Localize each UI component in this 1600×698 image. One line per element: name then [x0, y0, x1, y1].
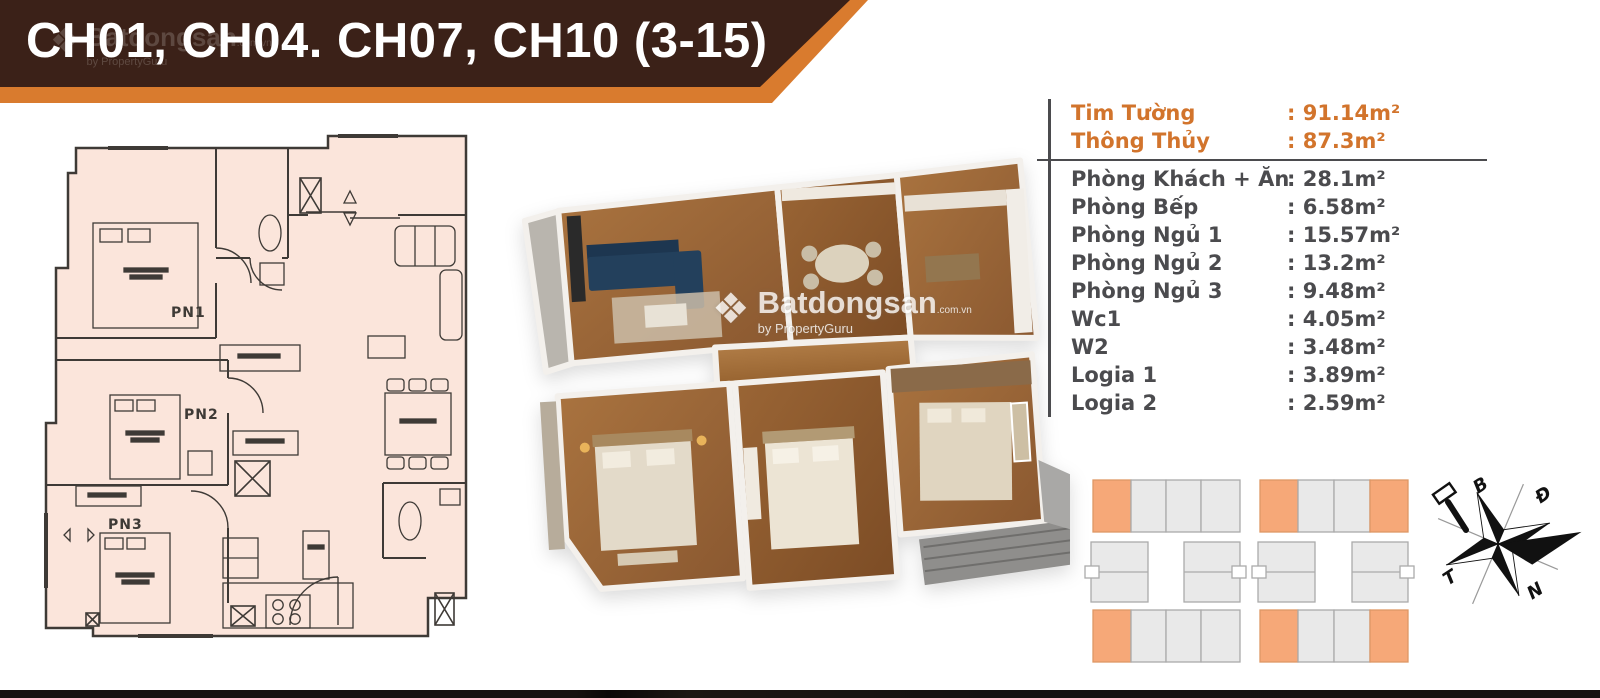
watermark-brand: Batdongsan — [758, 285, 937, 320]
floorplan-outline — [46, 136, 466, 636]
unit-notch — [1085, 566, 1099, 578]
unit-highlighted — [1260, 610, 1298, 662]
area-row-thong-thuy: Thông Thủy : 87.3m² — [1051, 127, 1487, 155]
watermark-byline: by PropertyGuru — [758, 321, 853, 336]
area-label: Tim Tường — [1051, 101, 1287, 125]
area-label: Phòng Ngủ 2 — [1051, 251, 1287, 275]
coffee-table-3d — [644, 303, 687, 328]
unit — [1166, 610, 1201, 662]
compass-label-south: N — [1523, 578, 1547, 604]
area-row: Wc1 : 4.05m² — [1051, 305, 1487, 333]
area-value: : 13.2m² — [1287, 251, 1386, 275]
unit — [1298, 610, 1334, 662]
poster: ❖ Batdongsan.com.vn by PropertyGuru CH01… — [0, 0, 1600, 698]
unit-notch — [1400, 566, 1414, 578]
area-value: : 87.3m² — [1287, 129, 1386, 153]
unit-highlighted — [1260, 480, 1298, 532]
unit-title: CH01, CH04. CH07, CH10 (3-15) — [26, 13, 768, 69]
unit — [1201, 610, 1240, 662]
area-value: : 9.48m² — [1287, 279, 1386, 303]
area-row-tim-tuong: Tim Tường : 91.14m² — [1051, 99, 1487, 127]
bottom-strip — [0, 690, 1600, 698]
area-row: Phòng Ngủ 2 : 13.2m² — [1051, 249, 1487, 277]
room-label-pn1: PN1 — [171, 305, 206, 321]
area-row: Phòng Ngủ 1 : 15.57m² — [1051, 221, 1487, 249]
unit — [1131, 610, 1166, 662]
unit — [1298, 480, 1334, 532]
area-value: : 6.58m² — [1287, 195, 1386, 219]
site-plan — [1070, 468, 1420, 668]
area-label: Thông Thủy — [1051, 129, 1287, 153]
compass-label-west: T — [1439, 565, 1462, 590]
area-value: : 28.1m² — [1287, 167, 1386, 191]
unit-highlighted — [1370, 610, 1408, 662]
area-label: Logia 2 — [1051, 391, 1287, 415]
area-label: Phòng Ngủ 3 — [1051, 279, 1287, 303]
room-label-pn2: PN2 — [184, 407, 219, 423]
compass-label-east: Đ — [1530, 482, 1555, 508]
unit — [1334, 610, 1370, 662]
unit-notch — [1232, 566, 1246, 578]
unit — [1131, 480, 1166, 532]
area-row: Logia 1 : 3.89m² — [1051, 361, 1487, 389]
area-label: Logia 1 — [1051, 363, 1287, 387]
area-value: : 3.48m² — [1287, 335, 1386, 359]
area-label: Phòng Khách + Ăn — [1051, 167, 1287, 191]
unit — [1334, 480, 1370, 532]
area-value: : 15.57m² — [1287, 223, 1400, 247]
render-watermark: ❖ Batdongsan.com.vn by PropertyGuru — [712, 286, 972, 338]
watermark-logo-icon: ❖ — [712, 286, 750, 332]
table-separator — [1037, 159, 1487, 161]
unit-highlighted — [1093, 480, 1131, 532]
area-label: Phòng Bếp — [1051, 195, 1287, 219]
unit-notch — [1252, 566, 1266, 578]
unit — [1166, 480, 1201, 532]
floorplan-2d: PN1 PN2 PN3 — [38, 133, 482, 647]
area-row: Phòng Khách + Ăn : 28.1m² — [1051, 165, 1487, 193]
area-row: Phòng Ngủ 3 : 9.48m² — [1051, 277, 1487, 305]
area-row: W2 : 3.48m² — [1051, 333, 1487, 361]
unit-highlighted — [1370, 480, 1408, 532]
area-value: : 91.14m² — [1287, 101, 1400, 125]
room-label-pn3: PN3 — [108, 517, 143, 533]
watermark-domain: .com.vn — [937, 305, 972, 316]
unit — [1201, 480, 1240, 532]
compass-rose: B Đ T N — [1420, 452, 1600, 622]
area-value: : 4.05m² — [1287, 307, 1386, 331]
floorplan-3d-render — [478, 146, 1070, 646]
area-label: W2 — [1051, 335, 1287, 359]
area-value: : 3.89m² — [1287, 363, 1386, 387]
area-label: Phòng Ngủ 1 — [1051, 223, 1287, 247]
area-label: Wc1 — [1051, 307, 1287, 331]
area-row: Phòng Bếp : 6.58m² — [1051, 193, 1487, 221]
compass-label-north: B — [1469, 473, 1492, 498]
area-row: Logia 2 : 2.59m² — [1051, 389, 1487, 417]
unit-highlighted — [1093, 610, 1131, 662]
area-table: Tim Tường : 91.14m² Thông Thủy : 87.3m² … — [1048, 99, 1487, 417]
area-value: : 2.59m² — [1287, 391, 1386, 415]
